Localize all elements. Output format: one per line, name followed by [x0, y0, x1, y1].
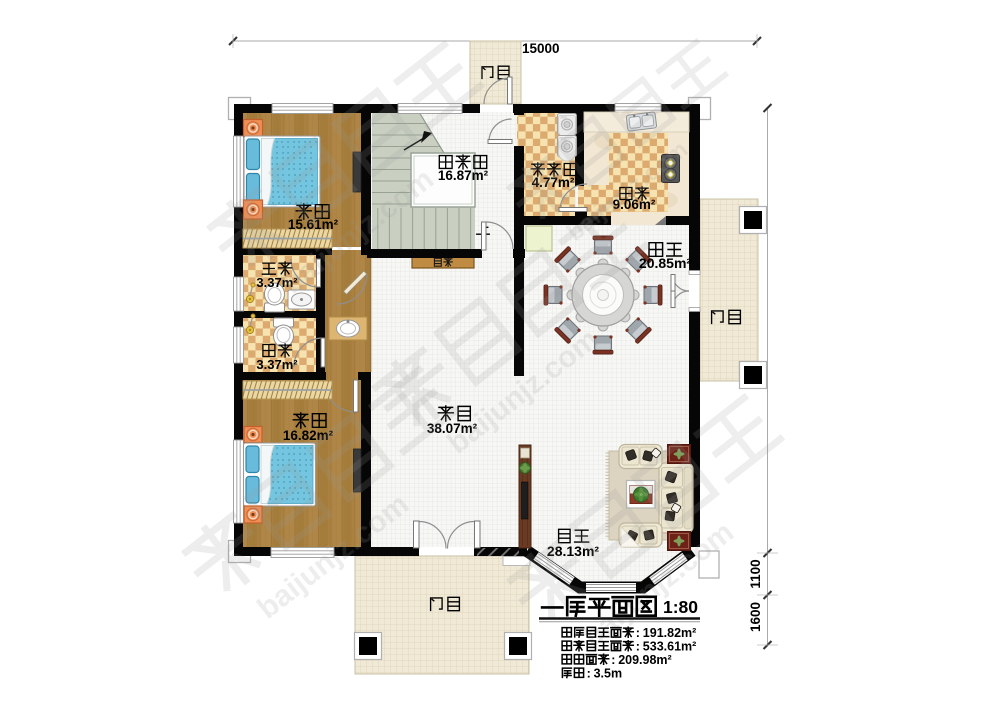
svg-text::: : [636, 639, 640, 653]
svg-text:16.87m²: 16.87m² [438, 168, 489, 183]
svg-text:1100: 1100 [748, 559, 763, 588]
svg-text:15000: 15000 [522, 41, 560, 56]
svg-text:3.5m: 3.5m [594, 666, 623, 680]
svg-text:191.82m²: 191.82m² [643, 626, 697, 640]
svg-text:3.37m²: 3.37m² [256, 357, 298, 372]
svg-text:533.61m²: 533.61m² [643, 639, 697, 653]
svg-text:1600: 1600 [748, 602, 763, 632]
svg-text::: : [587, 666, 591, 680]
svg-text::: : [611, 653, 615, 667]
svg-text::: : [636, 626, 640, 640]
svg-text:20.85m²: 20.85m² [639, 255, 691, 271]
svg-text:209.98m²: 209.98m² [618, 653, 672, 667]
svg-text:1:80: 1:80 [663, 597, 698, 617]
